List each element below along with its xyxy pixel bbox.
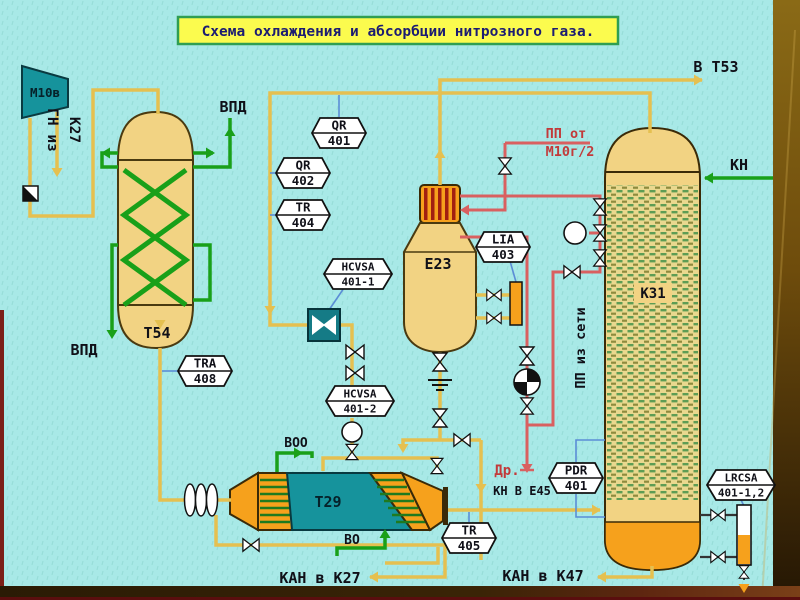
label-v-t53: В Т53 — [693, 58, 738, 76]
control-valve-icon — [308, 309, 340, 341]
instrument-tra408: TRA 408 — [178, 356, 232, 387]
instrument-qr401: QR 401 — [312, 118, 366, 149]
right-border-strip — [773, 0, 800, 600]
instrument-hcvsa401-1: HCVSA 401-1 — [324, 259, 392, 289]
instrument-lia403: LIA 403 — [476, 232, 530, 263]
bellows-icon — [196, 484, 207, 516]
instrument-number: 401 — [328, 133, 351, 148]
actuator-circle-icon — [342, 422, 362, 442]
label-gn-iz: ГН из — [44, 108, 60, 152]
instrument-number: 401-1,2 — [718, 487, 764, 500]
label-pp-ot: ПП от — [546, 126, 587, 142]
label-kan-v-k47: КАН в К47 — [502, 567, 583, 585]
instrument-tr405: TR 405 — [442, 523, 496, 554]
column-k31: К31 — [605, 128, 700, 570]
process-diagram: Схема охлаждения и абсорбции нитрозного … — [0, 0, 800, 600]
instrument-tag: PDR — [565, 463, 588, 478]
compressor-label: М10в — [30, 85, 60, 100]
instrument-number: 405 — [458, 538, 481, 553]
slide-gate-icon — [23, 186, 38, 201]
instrument-tag: QR — [295, 158, 311, 173]
label-pp-iz-seti: ПП из сети — [573, 307, 589, 388]
e23-label: Е23 — [424, 255, 451, 273]
vessel-t54: Т54 — [118, 112, 193, 348]
k31-label: К31 — [640, 286, 665, 302]
k31-packing — [607, 185, 698, 500]
instrument-tag: LRCSA — [724, 472, 757, 485]
instrument-tag: QR — [331, 118, 347, 133]
k31-gauge-level — [738, 535, 750, 564]
label-k27: К27 — [66, 117, 82, 143]
label-kn-v-e45: КН В Е45 — [493, 484, 551, 498]
bellows-icon — [185, 484, 196, 516]
t29-flange — [443, 487, 448, 525]
t54-label: Т54 — [143, 324, 170, 342]
instrument-number: 404 — [292, 215, 315, 230]
label-m10g2: М10г/2 — [546, 144, 595, 160]
instrument-tag: HCVSA — [343, 388, 376, 401]
exchanger-t29: Т29 — [230, 473, 448, 530]
label-voo: ВОО — [284, 436, 308, 451]
instrument-tag: LIA — [492, 232, 515, 247]
label-kn: КН — [730, 156, 748, 174]
k31-liquid — [605, 522, 700, 570]
instrument-number: 401-1 — [341, 276, 374, 289]
label-vpd-top: ВПД — [219, 98, 246, 116]
instrument-qr402: QR 402 — [276, 158, 330, 189]
instrument-number: 402 — [292, 173, 315, 188]
instrument-tag: TRA — [194, 356, 217, 371]
label-vpd-left: ВПД — [70, 341, 97, 359]
instrument-number: 401-2 — [343, 403, 376, 416]
instrument-number: 403 — [492, 247, 515, 262]
instrument-lrcsa401: LRCSA 401-1,2 — [707, 470, 775, 500]
instrument-tag: TR — [295, 200, 311, 215]
label-kan-v-k27: КАН в К27 — [279, 569, 360, 587]
pump-icon — [514, 369, 540, 395]
left-border-strip — [0, 310, 4, 588]
t29-left-tubes — [260, 480, 290, 522]
e23-level-gauge — [510, 282, 522, 325]
label-dr: Др. — [494, 463, 519, 479]
instrument-tag: TR — [461, 523, 477, 538]
instrument-hcvsa401-2: HCVSA 401-2 — [326, 386, 394, 416]
bellows-icon — [207, 484, 218, 516]
t29-label: Т29 — [314, 493, 341, 511]
page-title: Схема охлаждения и абсорбции нитрозного … — [202, 24, 595, 40]
title-banner: Схема охлаждения и абсорбции нитрозного … — [178, 17, 618, 44]
label-vo: ВО — [344, 533, 360, 548]
instrument-pdr401: PDR 401 — [549, 463, 603, 494]
instrument-tag: HCVSA — [341, 261, 374, 274]
instrument-circle-icon — [564, 222, 586, 244]
instrument-tr404: TR 404 — [276, 200, 330, 231]
instrument-number: 401 — [565, 478, 588, 493]
instrument-number: 408 — [194, 371, 217, 386]
